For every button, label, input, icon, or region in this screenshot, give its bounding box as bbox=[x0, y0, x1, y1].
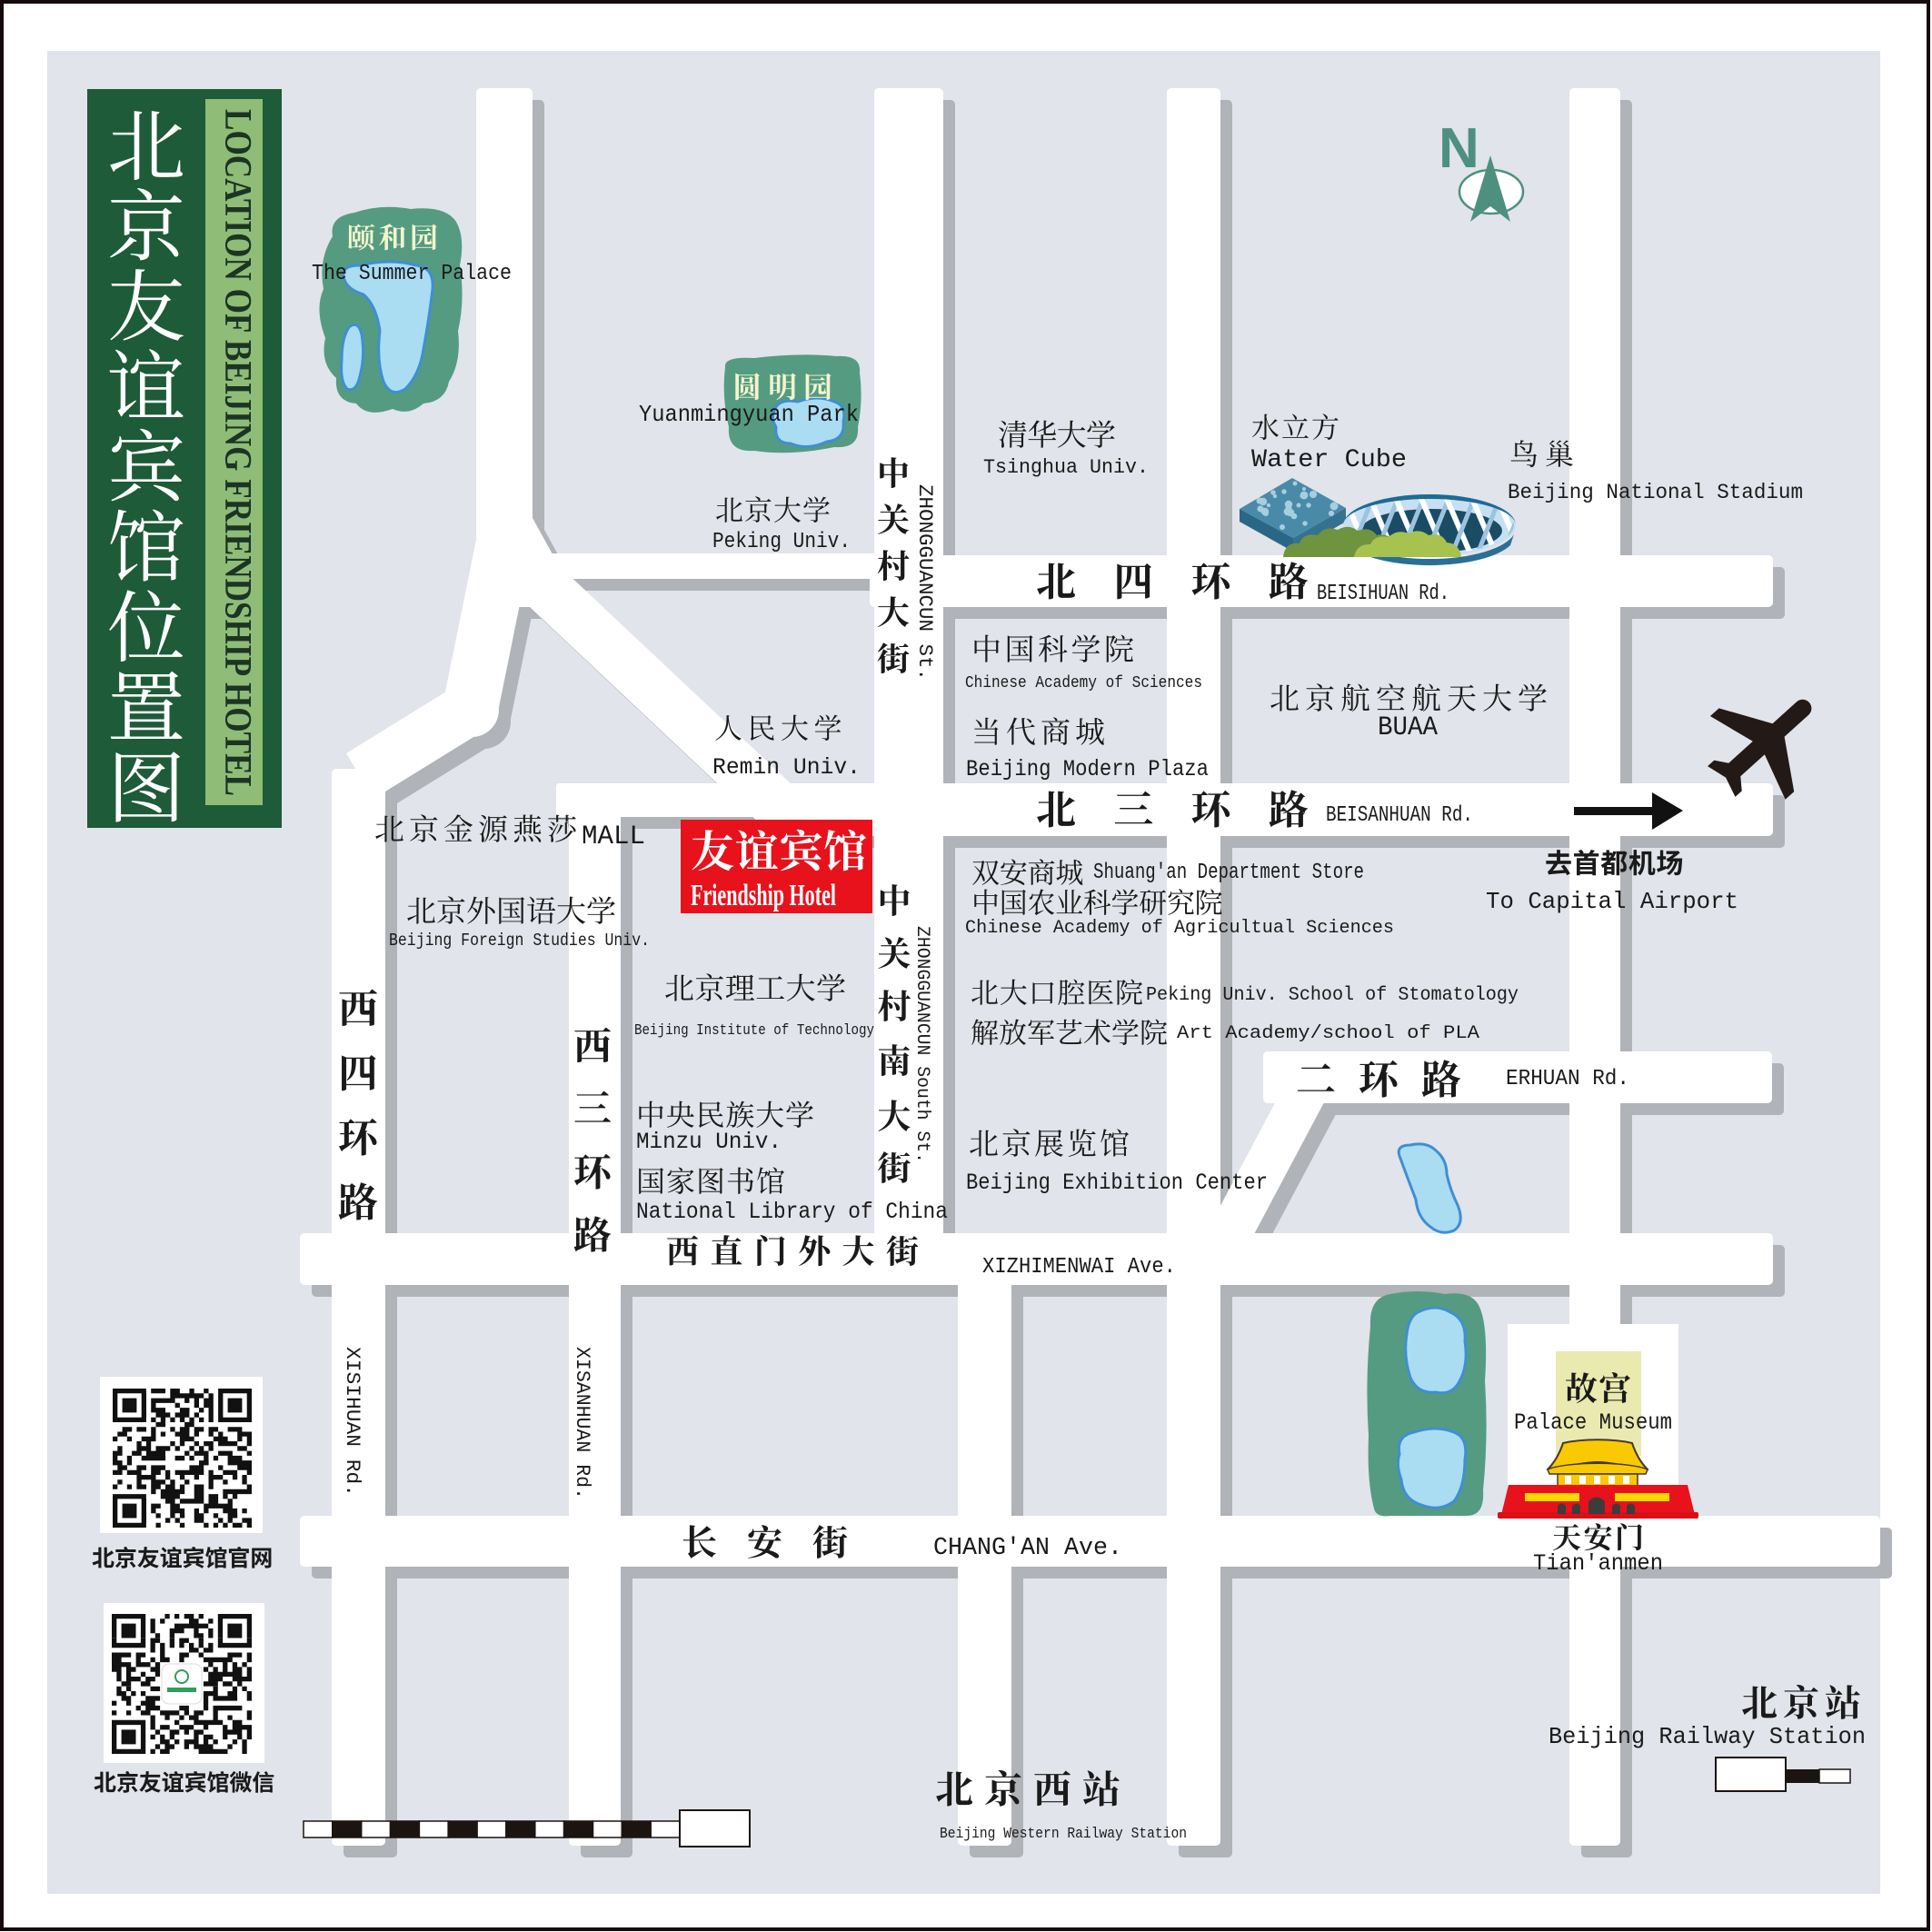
svg-text:N: N bbox=[1439, 117, 1479, 180]
svg-text:Beijing Western Railway Statio: Beijing Western Railway Station bbox=[940, 1826, 1187, 1843]
svg-text:ZHONGGUANCUN St.: ZHONGGUANCUN St. bbox=[913, 484, 936, 681]
svg-text:ZHONGGUANCUN South St.: ZHONGGUANCUN South St. bbox=[911, 926, 932, 1163]
svg-text:ERHUAN Rd.: ERHUAN Rd. bbox=[1506, 1067, 1629, 1091]
svg-text:To Capital Airport: To Capital Airport bbox=[1486, 888, 1738, 915]
svg-text:Chinese Academy of Agricultual: Chinese Academy of Agricultual Sciences bbox=[965, 918, 1394, 939]
svg-text:Beijing Modern Plaza: Beijing Modern Plaza bbox=[966, 756, 1209, 782]
svg-text:Shuang'an Department Store: Shuang'an Department Store bbox=[1093, 861, 1364, 885]
svg-text:Water Cube: Water Cube bbox=[1251, 446, 1407, 474]
svg-text:BUAA: BUAA bbox=[1378, 712, 1438, 743]
svg-text:BEISIHUAN Rd.: BEISIHUAN Rd. bbox=[1317, 582, 1449, 606]
svg-text:CHANG'AN Ave.: CHANG'AN Ave. bbox=[933, 1535, 1122, 1562]
svg-text:XISANHUAN Rd.: XISANHUAN Rd. bbox=[571, 1347, 593, 1499]
svg-text:Minzu Univ.: Minzu Univ. bbox=[636, 1129, 782, 1155]
svg-text:MALL: MALL bbox=[582, 822, 645, 852]
svg-text:Yuanmingyuan Park: Yuanmingyuan Park bbox=[639, 401, 859, 428]
svg-text:Beijing Railway Station: Beijing Railway Station bbox=[1549, 1723, 1866, 1750]
svg-text:Friendship Hotel: Friendship Hotel bbox=[691, 879, 836, 912]
svg-text:LOCATION OF BEIJING FRIENDSHIP: LOCATION OF BEIJING FRIENDSHIP HOTEL bbox=[216, 109, 258, 796]
svg-text:BEISANHUAN Rd.: BEISANHUAN Rd. bbox=[1326, 803, 1473, 828]
svg-text:Tian'anmen: Tian'anmen bbox=[1533, 1550, 1663, 1577]
svg-text:Beijing Foreign Studies Univ.: Beijing Foreign Studies Univ. bbox=[389, 931, 650, 951]
svg-text:XISIHUAN Rd.: XISIHUAN Rd. bbox=[341, 1347, 363, 1497]
svg-text:The Summer Palace: The Summer Palace bbox=[312, 262, 512, 286]
svg-text:National Library of China: National Library of China bbox=[636, 1199, 948, 1225]
svg-text:Beijing Institute of Technolog: Beijing Institute of Technology bbox=[634, 1022, 874, 1040]
svg-text:XIZHIMENWAI Ave.: XIZHIMENWAI Ave. bbox=[982, 1255, 1176, 1280]
svg-text:Chinese Academy of Sciences: Chinese Academy of Sciences bbox=[965, 674, 1202, 692]
svg-text:Palace Museum: Palace Museum bbox=[1514, 1409, 1672, 1436]
svg-text:Peking Univ.: Peking Univ. bbox=[712, 530, 851, 554]
svg-text:Beijing Exhibition Center: Beijing Exhibition Center bbox=[966, 1170, 1268, 1196]
svg-text:Beijing National Stadium: Beijing National Stadium bbox=[1508, 481, 1803, 504]
svg-text:Peking Univ. School of Stomato: Peking Univ. School of Stomatology bbox=[1146, 985, 1519, 1006]
svg-text:Art Academy/school of PLA: Art Academy/school of PLA bbox=[1177, 1023, 1479, 1044]
svg-text:Remin Univ.: Remin Univ. bbox=[712, 754, 861, 781]
svg-text:Tsinghua Univ.: Tsinghua Univ. bbox=[983, 456, 1149, 479]
